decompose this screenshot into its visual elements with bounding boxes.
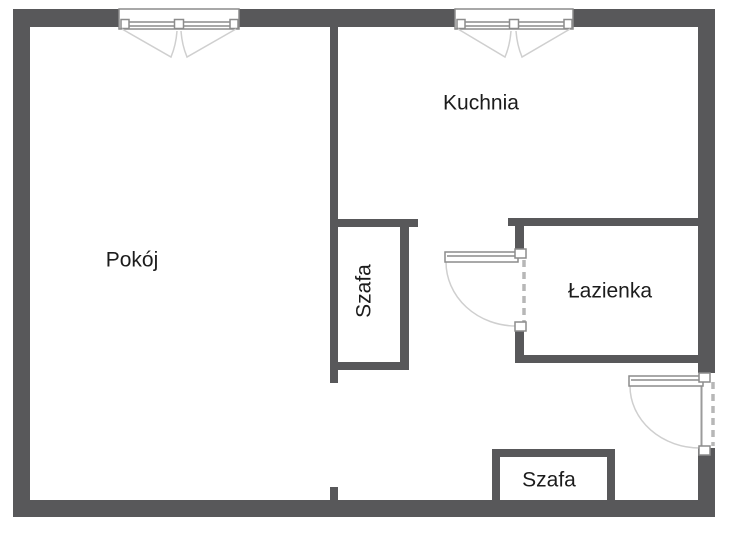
room-label-szafa-bottom: Szafa <box>522 470 576 491</box>
door-panel <box>629 376 703 386</box>
wall-bathroom-left-upper <box>515 226 524 252</box>
window-mullion <box>510 20 519 29</box>
window-mullion <box>175 20 184 29</box>
door-jamb-top <box>699 373 710 382</box>
wall-left <box>13 9 30 517</box>
room-label-szafa-middle: Szafa <box>354 264 375 318</box>
door-icon <box>445 249 526 331</box>
wall-right-upper <box>698 9 715 373</box>
window-jamb-left <box>121 20 129 29</box>
wall-closet2-right <box>607 449 615 501</box>
door-panel <box>445 252 518 262</box>
window-sash-swing-left <box>122 29 177 57</box>
window-sash-swing-left <box>458 29 511 57</box>
wall-bottom <box>13 500 715 517</box>
window-sash-swing-right <box>516 29 570 57</box>
window-jamb-right <box>230 20 238 29</box>
room-label-lazienka: Łazienka <box>568 281 652 302</box>
wall-right-lower <box>698 448 715 517</box>
door-jamb-bottom <box>699 446 710 455</box>
window-icon <box>119 9 239 57</box>
wall-bathroom-top <box>508 218 698 226</box>
room-label-kuchnia: Kuchnia <box>443 93 519 114</box>
floor-plan: Pokój Kuchnia Szafa Łazienka Szafa <box>0 0 743 537</box>
window-icon <box>455 9 573 57</box>
wall-closet1-bottom <box>334 362 409 370</box>
door-jamb-bottom <box>515 322 526 331</box>
window-sash-swing-right <box>181 29 236 57</box>
window-jamb-left <box>457 20 465 29</box>
wall-room-divider-stub <box>330 487 338 501</box>
door-icon <box>629 373 713 455</box>
wall-bathroom-bottom <box>515 355 698 363</box>
room-label-pokoj: Pokój <box>106 250 159 271</box>
door-swing-arc <box>630 386 700 448</box>
door-swing-arc <box>446 262 516 326</box>
door-jamb-top <box>515 249 526 258</box>
wall-closet1-right <box>400 225 409 370</box>
wall-room-divider <box>330 27 338 383</box>
window-jamb-right <box>564 20 572 29</box>
wall-closet2-top <box>492 449 615 457</box>
